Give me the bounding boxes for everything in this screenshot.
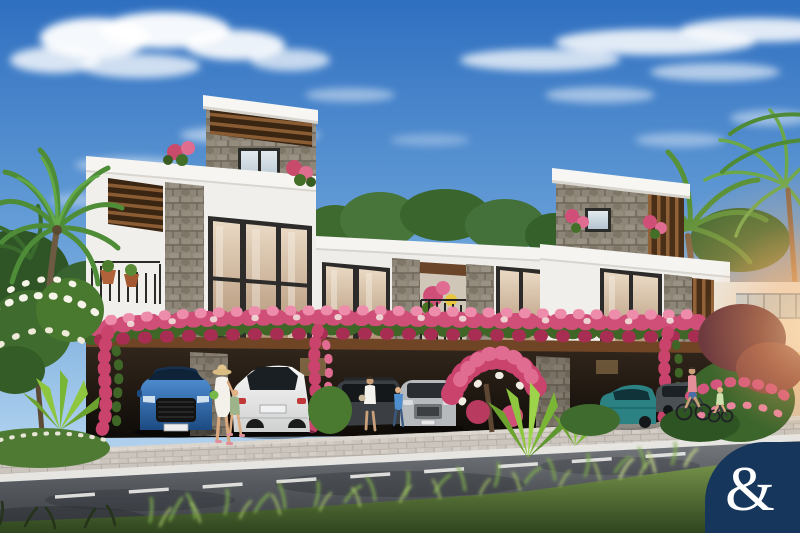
license-plate: [421, 420, 435, 425]
ampersand-logo: &: [725, 444, 775, 533]
render-canvas: [0, 0, 800, 533]
bush-1: [308, 386, 352, 434]
cascade-1: [102, 332, 108, 430]
license-plate: [260, 405, 286, 413]
scene-render: &: [0, 0, 800, 533]
license-plate: [164, 424, 188, 431]
